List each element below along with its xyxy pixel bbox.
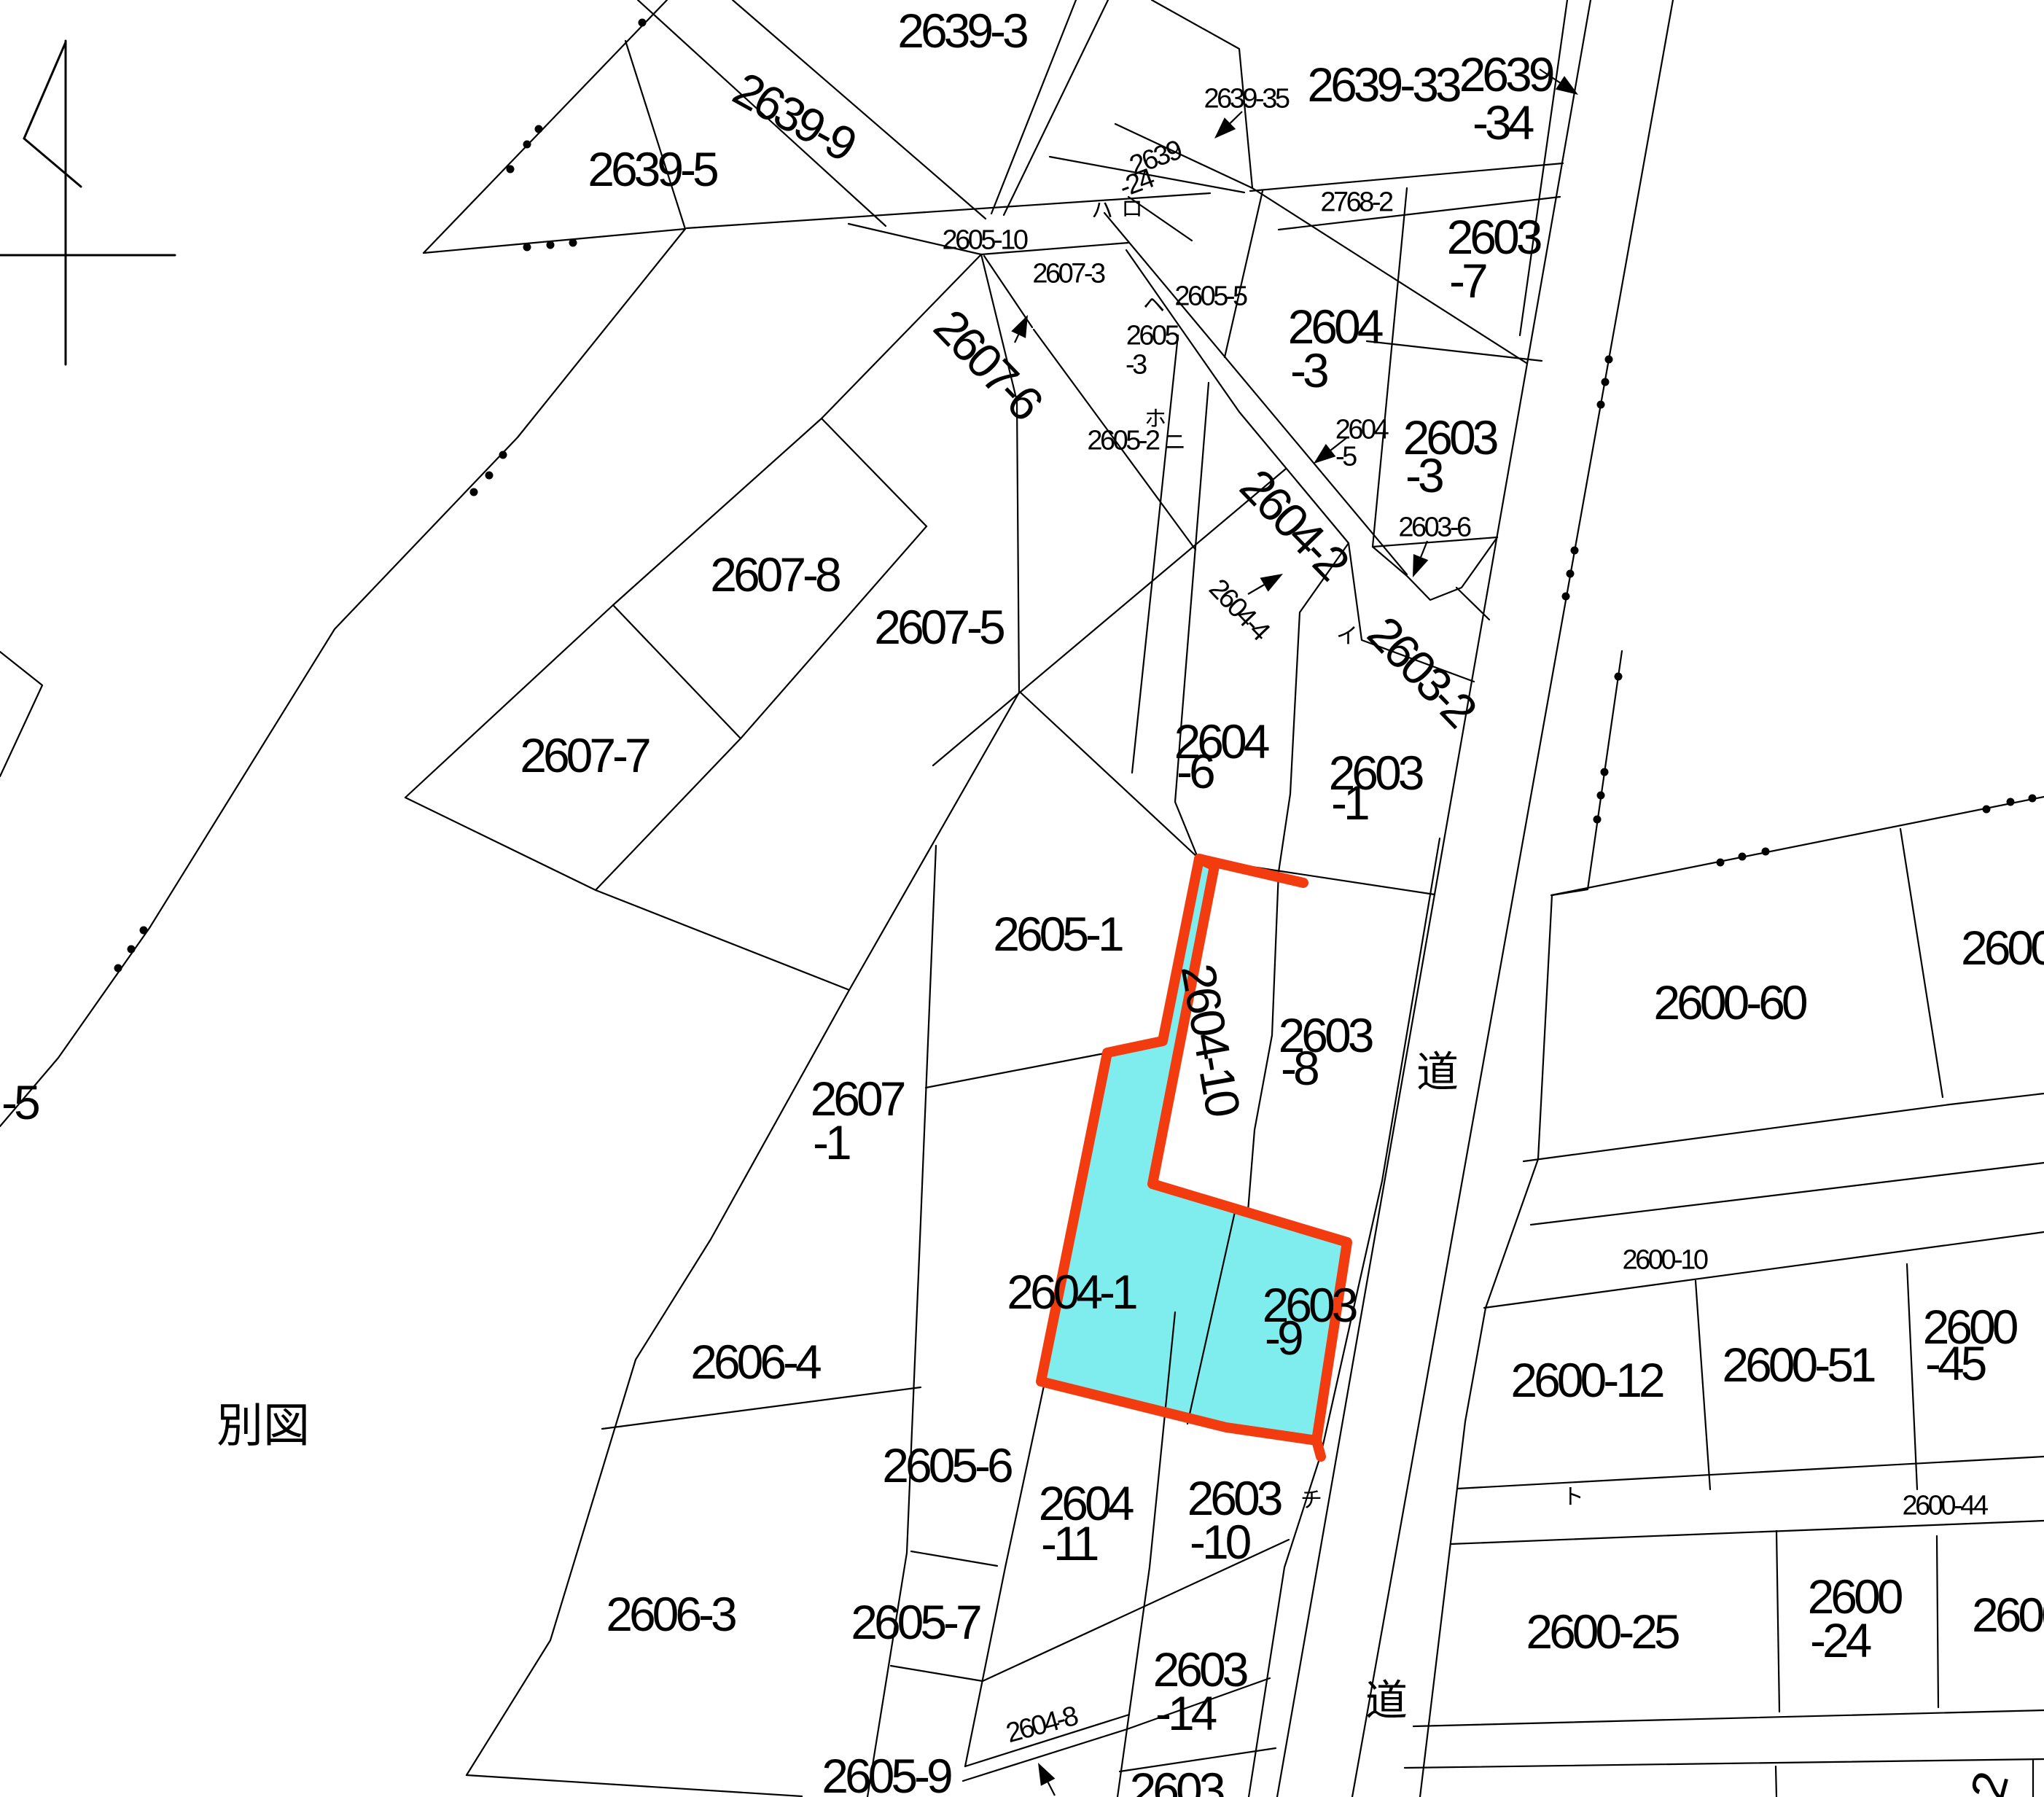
svg-text:2600: 2600 (1961, 921, 2044, 975)
svg-text:道: 道 (1416, 1048, 1459, 1096)
svg-text:2639-3: 2639-3 (897, 4, 1027, 58)
svg-text:2607-7: 2607-7 (520, 728, 650, 782)
svg-text:-5: -5 (1, 1075, 39, 1129)
svg-text:2600-10: 2600-10 (1623, 1244, 1708, 1275)
svg-text:道: 道 (1365, 1677, 1408, 1724)
svg-text:2607-8: 2607-8 (710, 547, 840, 601)
svg-text:2600-44: 2600-44 (1903, 1490, 1989, 1521)
svg-text:2600-12: 2600-12 (1510, 1353, 1663, 1407)
svg-text:-3: -3 (1290, 343, 1327, 397)
svg-text:-9: -9 (1265, 1311, 1302, 1365)
svg-text:2639: 2639 (1459, 47, 1553, 101)
svg-text:2605: 2605 (1126, 320, 1179, 351)
svg-text:ハ: ハ (1091, 199, 1113, 223)
svg-text:-34: -34 (1472, 95, 1534, 149)
svg-text:ト: ト (1562, 1486, 1584, 1510)
svg-text:-6: -6 (1177, 744, 1214, 798)
svg-text:-5: -5 (1335, 441, 1357, 472)
svg-text:2605-6: 2605-6 (882, 1438, 1012, 1492)
svg-text:ニ: ニ (1164, 431, 1186, 455)
svg-text:-11: -11 (1041, 1516, 1098, 1570)
svg-text:-3: -3 (1405, 448, 1443, 502)
svg-text:ロ: ロ (1121, 198, 1143, 222)
svg-text:2600-: 2600- (1972, 1588, 2044, 1642)
svg-text:2606-4: 2606-4 (690, 1335, 821, 1389)
svg-text:2768-2: 2768-2 (1320, 187, 1393, 217)
svg-text:2600-60: 2600-60 (1653, 975, 1807, 1029)
svg-text:2606-3: 2606-3 (606, 1587, 736, 1641)
svg-text:-8: -8 (1281, 1041, 1318, 1095)
svg-text:2605-1: 2605-1 (993, 907, 1123, 961)
svg-text:ヘ: ヘ (1143, 294, 1165, 318)
svg-text:2639-33: 2639-33 (1307, 58, 1460, 112)
svg-text:2605-7: 2605-7 (851, 1595, 980, 1649)
svg-text:2603: 2603 (1130, 1763, 1224, 1797)
svg-text:2605-5: 2605-5 (1174, 281, 1247, 311)
svg-text:2607-3: 2607-3 (1032, 258, 1105, 289)
svg-text:2607-5: 2607-5 (874, 600, 1004, 654)
svg-text:2604-1: 2604-1 (1007, 1265, 1136, 1319)
svg-text:2600-25: 2600-25 (1526, 1605, 1679, 1658)
svg-text:2605-10: 2605-10 (943, 225, 1028, 255)
svg-text:-7: -7 (1449, 254, 1486, 308)
svg-text:-14: -14 (1155, 1686, 1217, 1740)
svg-text:2605-9: 2605-9 (822, 1749, 951, 1797)
svg-text:-45: -45 (1925, 1336, 1986, 1390)
svg-text:-3: -3 (1126, 349, 1147, 380)
svg-text:イ: イ (1336, 625, 1358, 649)
svg-text:2639-5: 2639-5 (588, 142, 717, 196)
svg-text:ホ: ホ (1144, 408, 1166, 432)
svg-text:2603-6: 2603-6 (1398, 512, 1471, 542)
svg-text:2639-35: 2639-35 (1204, 83, 1290, 114)
svg-text:2604: 2604 (1335, 414, 1389, 445)
svg-text:-1: -1 (813, 1115, 850, 1169)
svg-text:別図: 別図 (217, 1399, 310, 1451)
svg-text:-24: -24 (1810, 1613, 1871, 1667)
svg-text:-10: -10 (1190, 1515, 1251, 1569)
svg-text:チ: チ (1300, 1489, 1322, 1513)
svg-text:2600-51: 2600-51 (1722, 1338, 1875, 1392)
svg-text:-1: -1 (1331, 776, 1368, 830)
